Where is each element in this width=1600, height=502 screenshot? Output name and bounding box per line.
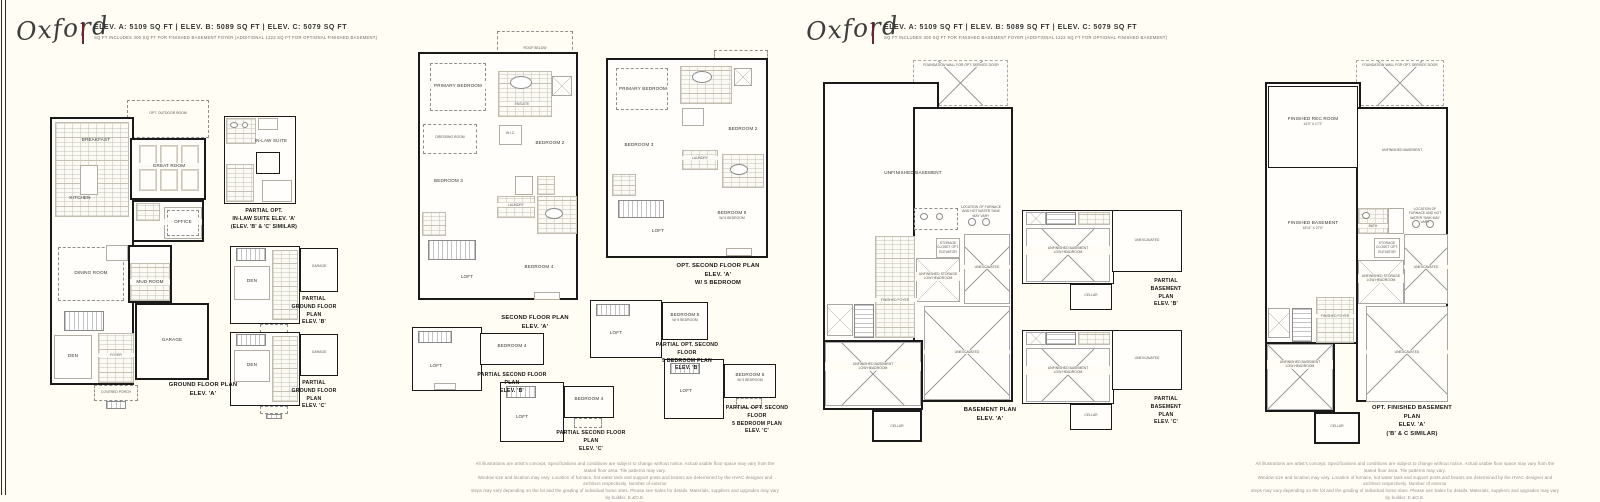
bath-tile	[422, 212, 446, 236]
room-label-text: LOW HEADROOM	[1267, 364, 1333, 368]
ensuite-shower	[734, 68, 752, 86]
bath-tub	[545, 208, 563, 219]
unfinished-basement-area	[1026, 228, 1110, 282]
disclaimer-left: All illustrations are artist's concept. …	[470, 461, 780, 502]
unfinished-basement-area	[1267, 344, 1333, 410]
porch-area	[260, 406, 288, 414]
room-label-laundry: LAUNDRY	[497, 203, 535, 207]
label-storage-closet: STORAGE CLOSET OPT. ELEVATOR	[936, 241, 960, 254]
room-label-bed2: BEDROOM 2	[720, 126, 766, 132]
caption-line: ('B' & C SIMILAR)	[1370, 430, 1454, 439]
room-label-unexcavated: UNEXCAVATED	[1112, 356, 1182, 360]
caption-partial-basement-b: PARTIALBASEMENT PLANELEV. 'B'	[1144, 278, 1188, 309]
plan-opt-second-floor-a: PRIMARY BEDROOM BEDROOM 2 BEDROOM 3 LAUN…	[598, 50, 778, 295]
caption-line: SECOND FLOOR PLAN	[475, 314, 595, 323]
caption-line: PARTIAL OPT. SECOND FLOOR	[654, 342, 720, 358]
caption-partial-basement-c: PARTIALBASEMENT PLANELEV. 'C'	[1144, 396, 1188, 427]
caption-line: BASEMENT PLAN	[1144, 286, 1188, 302]
caption-line: ELEV. 'C'	[290, 403, 338, 411]
stairs	[236, 248, 266, 261]
room-label-unfinished-basement: UNFINISHED BASEMENTLOW HEADROOM	[1267, 360, 1333, 369]
unfinished-basement-area	[1026, 348, 1110, 402]
room-label-text: LOW HEADROOM	[1026, 250, 1110, 254]
caption-partial-second-b: PARTIAL SECOND FLOOR PLANELEV. 'B'	[476, 372, 548, 395]
room-label-cellar: CELLAR	[1314, 424, 1360, 428]
room-label-den: DEN	[54, 353, 92, 359]
room-label-office: OFFICE	[164, 219, 202, 225]
room-label-unexcavated: UNEXCAVATED	[1404, 265, 1448, 269]
room-label-kitchen: KITCHEN	[60, 195, 100, 201]
room-label-finished-foyer: FINISHED FOYER	[1314, 314, 1356, 318]
room-label-unfinished-basement: UNFINISHED BASEMENT	[1360, 148, 1444, 152]
stairs	[1046, 212, 1076, 225]
low-headroom-area	[1026, 332, 1046, 345]
ensuite-shower	[552, 76, 572, 96]
bath-tile	[537, 176, 555, 195]
caption-line: ELEV. 'C'	[722, 428, 792, 436]
unfinished-basement-area	[825, 342, 921, 406]
porch-roof-area	[574, 418, 602, 428]
caption-line: PARTIAL	[290, 296, 338, 304]
room-label-loft: LOFT	[504, 414, 540, 420]
room-label-laundry: LAUNDRY	[682, 156, 718, 160]
disclaimer-line: Window size and location may vary. Locat…	[470, 475, 780, 489]
walk-in-closet	[682, 108, 704, 126]
room-label-porch: COVERED PORCH	[94, 390, 138, 394]
caption-line: 5 BEDROOM PLAN	[654, 358, 720, 366]
room-label-loft: LOFT	[446, 274, 488, 280]
room-label-bed4: BEDROOM 4	[480, 343, 544, 349]
low-headroom-area	[1268, 308, 1290, 338]
caption-line: W/ 5 BEDROOM	[658, 279, 778, 288]
header-divider	[82, 22, 84, 44]
caption-line: ELEV. 'A'	[658, 271, 778, 280]
stairs	[428, 240, 476, 260]
caption-line: BASEMENT PLAN	[1144, 404, 1188, 420]
room-dim-text: 14'0" x 17'2"	[1268, 122, 1358, 126]
bath-fixture	[242, 122, 248, 128]
caption-line: ELEV. 'B'	[654, 365, 720, 373]
room-label-bed5: BEDROOM 5W/ 5 BEDROOM	[662, 312, 708, 322]
low-headroom-area	[827, 304, 853, 336]
elevation-sqft-line: ELEV. A: 5109 SQ FT | ELEV. B: 5089 SQ F…	[94, 24, 347, 31]
plan-partial-second-b: LOFT BEDROOM 4 PARTIAL SECOND FLOOR PLAN…	[406, 323, 548, 397]
room-label-cellar: CELLAR	[872, 424, 922, 428]
bath-fixture	[920, 213, 928, 220]
stairs	[1046, 332, 1076, 345]
room-label-finished-foyer: FINISHED FOYER	[873, 298, 917, 302]
room-label-text: W/ 5 BEDROOM	[698, 216, 766, 220]
storage-closet	[515, 176, 533, 195]
caption-basement-a: BASEMENT PLANELEV. 'A'	[955, 406, 1025, 423]
caption-partial-ground-b: PARTIALGROUND FLOOR PLANELEV. 'B'	[290, 296, 338, 327]
room-label-unexcavated: UNEXCAVATED	[964, 265, 1010, 269]
coffer-panel	[139, 169, 157, 191]
caption-opt-finished-basement: OPT. FINISHED BASEMENT PLANELEV. 'A'('B'…	[1370, 404, 1454, 439]
room-label-roof-below: ROOF BELOW	[497, 46, 573, 50]
wall-outline	[564, 386, 614, 418]
closet	[258, 118, 278, 130]
disclaimer-right: All illustrations are artist's concept. …	[1250, 461, 1560, 502]
coffer-panel	[181, 169, 199, 191]
room-label-bed5: BEDROOM 5W/ 5 BEDROOM	[698, 210, 766, 220]
sqft-note: SQ FT INCLUDES 300 SQ FT FOR FINISHED BA…	[884, 35, 1167, 40]
room-label-garage: GARAGE	[135, 337, 209, 343]
room-label-in-law: IN-LAW SUITE	[248, 138, 294, 144]
caption-partial-second-c: PARTIAL SECOND FLOOR PLANELEV. 'C'	[556, 430, 626, 453]
room-label-primary: PRIMARY BEDROOM	[425, 83, 491, 89]
inner-wall	[256, 152, 280, 174]
wall-outline	[300, 248, 338, 292]
caption-line: PARTIAL OPT.	[222, 208, 306, 216]
plan-in-law-suite: IN-LAW SUITE PARTIAL OPT.IN-LAW SUITE EL…	[222, 112, 306, 226]
room-label-bed3: BEDROOM 3	[610, 142, 668, 148]
plan-partial-basement-c: UNFINISHED BASEMENTLOW HEADROOM UNEXCAVA…	[1018, 326, 1188, 436]
room-label-breakfast: BREAKFAST	[76, 137, 116, 143]
plan-partial-basement-b: UNFINISHED BASEMENTLOW HEADROOM UNEXCAVA…	[1018, 206, 1188, 316]
finished-foyer-tile	[1316, 297, 1354, 343]
finished-foyer-tile	[1078, 332, 1110, 345]
room-label-bed5: BEDROOM 5W/ 5 BEDROOM	[724, 372, 776, 382]
room-label-rec-room: FINISHED REC ROOM14'0" x 17'2"	[1268, 116, 1358, 126]
bath-fixture	[936, 213, 943, 220]
furnace-symbol	[968, 218, 976, 226]
label-storage-closet: STORAGE CLOSET OPT. ELEVATOR	[1374, 241, 1400, 254]
bath-fixture	[1362, 212, 1370, 219]
caption-opt-second-floor-a: OPT. SECOND FLOOR PLANELEV. 'A'W/ 5 BEDR…	[658, 262, 778, 288]
stairs	[618, 200, 664, 218]
stairs	[1292, 308, 1312, 342]
powder-room-tile	[136, 203, 160, 221]
room-label-unfinished-storage: UNFINISHED STORAGELOW HEADROOM	[1358, 274, 1404, 283]
finished-foyer-tile	[875, 236, 915, 338]
plan-partial-ground-b: DEN GARAGE PARTIALGROUND FLOOR PLANELEV.…	[226, 240, 338, 340]
room-label-dressing: DRESSING ROOM	[423, 135, 477, 139]
caption-line: 5 BEDROOM PLAN	[722, 421, 792, 429]
caption-line: PARTIAL	[1144, 396, 1188, 404]
room-label-dining: DINING ROOM	[58, 270, 124, 276]
finished-foyer-tile	[1078, 212, 1110, 225]
room-label-cellar: CELLAR	[1070, 413, 1112, 417]
room-label-foyer: FOYER	[98, 353, 134, 357]
room-label-opt-outdoor: OPT. OUTDOOR ROOM	[129, 111, 207, 115]
caption-line: PARTIAL SECOND FLOOR PLAN	[556, 430, 626, 446]
bath-tub	[730, 164, 748, 175]
room-label-text: LOW HEADROOM	[825, 366, 921, 370]
room-label-loft: LOFT	[668, 388, 704, 394]
room-label-unfinished-storage: UNFINISHED STORAGELOW HEADROOM	[916, 272, 960, 281]
room-label-text: LOW HEADROOM	[916, 276, 960, 280]
room-label-garage: GARAGE	[300, 264, 338, 268]
caption-line: (ELEV. 'B' & 'C' SIMILAR)	[222, 224, 306, 232]
caption-line: ELEV. 'A'	[955, 415, 1025, 424]
room-label-unexcavated: UNEXCAVATED	[1366, 350, 1448, 354]
plan-opt-finished-basement: FOUNDATION WALL FOR OPT. SERVICE DOOR FI…	[1256, 58, 1458, 450]
caption-line: GROUND FLOOR PLAN	[290, 304, 338, 320]
stairs	[64, 311, 104, 331]
window-seat	[726, 248, 752, 256]
room-label-text: LOW HEADROOM	[1358, 278, 1404, 282]
caption-line: BASEMENT PLAN	[955, 406, 1025, 415]
ensuite-tub	[510, 76, 532, 89]
room-label-unfinished-basement: UNFINISHED BASEMENTLOW HEADROOM	[1026, 246, 1110, 255]
stairs	[854, 304, 874, 338]
room-label-finished-basement: FINISHED BASEMENT18'11" x 27'0"	[1268, 220, 1358, 230]
ensuite-tub	[692, 71, 712, 83]
foyer-tile	[98, 333, 134, 383]
suite-tile	[226, 164, 254, 202]
wall-outline	[480, 333, 544, 365]
window-seat	[434, 383, 456, 390]
caption-line: OPT. SECOND FLOOR PLAN	[658, 262, 778, 271]
room-label-bath: BATH	[1358, 224, 1388, 228]
header-divider	[872, 22, 874, 44]
plan-basement-a: FOUNDATION WALL FOR OPT. SERVICE DOOR UN…	[808, 58, 1018, 450]
label-service-door: FOUNDATION WALL FOR OPT. SERVICE DOOR	[916, 63, 1006, 67]
room-label-ensuite: ENSUITE	[500, 102, 544, 106]
plan-ground-floor-a: OPT. OUTDOOR ROOM BREAKFAST KITCHEN GREA…	[48, 95, 218, 410]
room-label-mud: MUD ROOM	[130, 279, 170, 285]
caption-line: ELEV. 'A'	[143, 390, 263, 399]
room-label-text: LOW HEADROOM	[1026, 370, 1110, 374]
room-label-wic: W.I.C.	[499, 131, 522, 135]
room-label-great-room: GREAT ROOM	[136, 163, 202, 169]
room-label-unfinished-basement: UNFINISHED BASEMENTLOW HEADROOM	[825, 362, 921, 371]
bath-tile	[612, 174, 636, 196]
caption-line: PARTIAL	[1144, 278, 1188, 286]
bath-fixture	[230, 122, 238, 128]
caption-line: ELEV. 'C'	[1144, 419, 1188, 427]
caption-line: PARTIAL SECOND FLOOR PLAN	[476, 372, 548, 388]
window-seat	[534, 292, 560, 300]
porch-steps	[266, 414, 282, 419]
stairs	[596, 304, 630, 316]
room-label-garage: GARAGE	[300, 350, 338, 354]
label-furnace-note: LOCATION OF FURNACE AND HOT WATER TANK M…	[1406, 207, 1444, 225]
disclaimer-line: steps may vary depending on the lot and …	[1250, 488, 1560, 502]
caption-in-law: PARTIAL OPT.IN-LAW SUITE ELEV. 'A'(ELEV.…	[222, 208, 306, 231]
stairs	[418, 331, 452, 343]
caption-partial-opt-second-b: PARTIAL OPT. SECOND FLOOR5 BEDROOM PLANE…	[654, 342, 720, 373]
caption-line: GROUND FLOOR PLAN	[290, 388, 338, 404]
caption-line: ELEV. 'B'	[290, 319, 338, 327]
rec-room-wall	[1268, 86, 1358, 168]
porch-steps	[106, 401, 126, 409]
caption-line: GROUND FLOOR PLAN	[143, 381, 263, 390]
room-label-bed4: BEDROOM 4	[502, 264, 576, 270]
page-edge-line	[5, 0, 6, 495]
room-label-loft: LOFT	[638, 228, 678, 234]
caption-line: PARTIAL OPT. SECOND FLOOR	[722, 405, 792, 421]
stairs	[236, 334, 266, 346]
closet	[106, 245, 128, 261]
caption-line: IN-LAW SUITE ELEV. 'A'	[222, 216, 306, 224]
room-label-bed2: BEDROOM 2	[525, 140, 575, 146]
elevation-sqft-line: ELEV. A: 5109 SQ FT | ELEV. B: 5089 SQ F…	[884, 24, 1137, 31]
caption-partial-opt-second-c: PARTIAL OPT. SECOND FLOOR5 BEDROOM PLANE…	[722, 405, 792, 436]
room-label-cellar: CELLAR	[1070, 293, 1112, 297]
room-label-unexcavated: UNEXCAVATED	[1112, 238, 1182, 242]
room-label-den: DEN	[234, 278, 270, 284]
page-edge-line	[1, 0, 2, 495]
disclaimer-line: All illustrations are artist's concept. …	[470, 461, 780, 475]
room-label-text: W/ 5 BEDROOM	[724, 378, 776, 382]
caption-line: PARTIAL	[290, 380, 338, 388]
caption-ground-floor-a: GROUND FLOOR PLANELEV. 'A'	[143, 381, 263, 398]
room-label-loft: LOFT	[596, 330, 636, 336]
room-label-den: DEN	[234, 362, 270, 368]
plan-partial-opt-second-b: LOFT BEDROOM 5W/ 5 BEDROOM PARTIAL OPT. …	[584, 296, 720, 364]
room-dim-text: 18'11" x 27'0"	[1268, 226, 1358, 230]
caption-line: ELEV. 'A'	[475, 323, 595, 332]
kitchen-island	[80, 165, 98, 195]
shower	[1388, 208, 1404, 234]
caption-line: ELEV. 'B'	[476, 388, 548, 396]
room-label-primary: PRIMARY BEDROOM	[612, 86, 674, 92]
caption-line: OPT. FINISHED BASEMENT PLAN	[1370, 404, 1454, 421]
low-headroom-area	[1026, 212, 1046, 225]
room-label-loft: LOFT	[416, 363, 456, 369]
coffer-panel	[160, 169, 178, 191]
label-furnace-note: LOCATION OF FURNACE AND HOT WATER TANK M…	[960, 205, 1002, 218]
hwt-symbol	[982, 218, 990, 226]
disclaimer-line: Window size and location may vary. Locat…	[1250, 475, 1560, 489]
plan-partial-ground-c: DEN GARAGE PARTIALGROUND FLOOR PLANELEV.…	[226, 328, 338, 424]
sqft-note: SQ FT INCLUDES 300 SQ FT FOR FINISHED BA…	[94, 35, 377, 40]
disclaimer-line: All illustrations are artist's concept. …	[1250, 461, 1560, 475]
caption-line: ELEV. 'B'	[1144, 301, 1188, 309]
room-label-unexcavated: UNEXCAVATED	[924, 350, 1010, 354]
room-label-text: W/ 5 BEDROOM	[662, 318, 708, 322]
disclaimer-line: steps may vary depending on the lot and …	[470, 488, 780, 502]
opt-outdoor-room-area	[127, 100, 209, 138]
room-label-bed3: BEDROOM 3	[420, 178, 477, 184]
caption-partial-ground-c: PARTIALGROUND FLOOR PLANELEV. 'C'	[290, 380, 338, 411]
room-label-unfinished-basement: UNFINISHED BASEMENTLOW HEADROOM	[1026, 366, 1110, 375]
caption-second-floor-a: SECOND FLOOR PLANELEV. 'A'	[475, 314, 595, 331]
suite-room	[262, 180, 292, 202]
wall-outline	[300, 334, 338, 376]
plan-second-floor-a: ROOF BELOW PRIMARY BEDROOM ENSUITE DRESS…	[400, 28, 580, 328]
caption-line: ELEV. 'A'	[1370, 421, 1454, 430]
room-label-bed4: BEDROOM 4	[564, 396, 614, 402]
caption-line: ELEV. 'C'	[556, 446, 626, 454]
label-service-door: FOUNDATION WALL FOR OPT. SERVICE DOOR	[1358, 63, 1442, 67]
room-label-unfinished-basement: UNFINISHED BASEMENT	[868, 170, 958, 176]
